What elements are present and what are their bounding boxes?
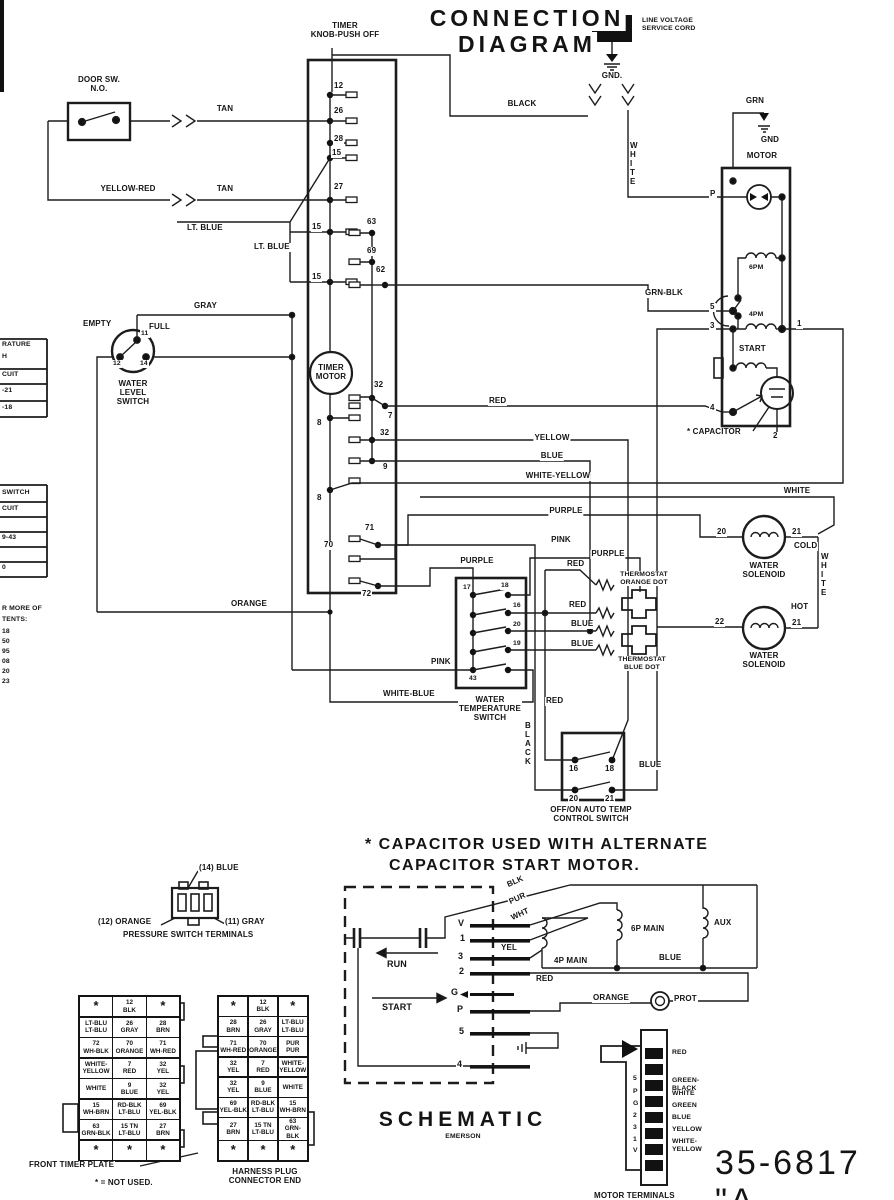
red-sch-label: RED	[535, 975, 554, 984]
timer-terminal-32: 32	[373, 381, 384, 390]
capacitor-note-2: CAPACITOR START MOTOR.	[388, 857, 641, 875]
timer-terminal-26: 26	[333, 107, 344, 116]
water-temp-switch-label: WATER TEMPERATURE SWITCH	[458, 696, 522, 723]
plate-cell: 27 BRN	[147, 1120, 179, 1139]
motor-terminal-1: 1	[796, 320, 803, 329]
plate-cell: 7 RED	[113, 1059, 145, 1078]
purple-label-3: PURPLE	[590, 550, 625, 559]
wire-chevron	[172, 194, 195, 206]
plate-cell: 26 GRAY	[113, 1018, 145, 1037]
start-label-2: START	[381, 1002, 413, 1012]
full-label: FULL	[148, 323, 171, 332]
hot-terminal-22: 22	[714, 618, 725, 627]
ground-symbol	[604, 64, 620, 70]
left-frag: 20	[1, 668, 11, 676]
wts-terminal-16: 16	[512, 602, 522, 610]
motor-wire-color: WHITE	[671, 1090, 696, 1098]
water-solenoid-label-2: WATER SOLENOID	[742, 652, 787, 670]
harness-plug-caption: HARNESS PLUG CONNECTOR END	[228, 1168, 302, 1186]
red-label-2: RED	[566, 560, 585, 569]
timer-terminal-69: 69	[366, 247, 377, 256]
empty-label: EMPTY	[82, 320, 112, 329]
motor-terminals-caption: MOTOR TERMINALS	[593, 1192, 676, 1200]
yellow-red-label: YELLOW-RED	[99, 185, 156, 194]
start-label: START	[738, 345, 767, 354]
timer-terminal-9: 9	[382, 463, 389, 472]
plate-cell: WHITE	[279, 1078, 307, 1097]
capacitor-note-1: * CAPACITOR USED WITH ALTERNATE	[364, 836, 709, 854]
left-frag: 50	[1, 638, 11, 646]
4p-main-coil	[542, 918, 547, 968]
blue-label-2: BLUE	[570, 620, 594, 629]
motor-pin-letter: 5	[632, 1075, 638, 1083]
pink-label-2: PINK	[430, 658, 452, 667]
scan-edge-artifact	[0, 0, 4, 92]
wts-terminal-18: 18	[500, 582, 510, 590]
plate-cell: 63 GRN-BLK	[80, 1120, 112, 1139]
yellow-label: YELLOW	[533, 434, 570, 443]
wts-terminal-43: 43	[468, 675, 478, 683]
plate-cell: *	[219, 1141, 247, 1160]
capacitor-circle	[761, 377, 793, 409]
plate-cell: PUR PUR	[279, 1037, 307, 1056]
plate-cell: *	[80, 997, 112, 1016]
motor-box	[722, 168, 790, 426]
left-frag: 95	[1, 648, 11, 656]
temp-control-switch-label: OFF/ON AUTO TEMP CONTROL SWITCH	[549, 806, 633, 824]
wts-terminal-17: 17	[462, 584, 472, 592]
plate-cell: 32 YEL	[219, 1058, 247, 1077]
6p-main-label: 6P MAIN	[630, 925, 665, 934]
thermostat-zigzag	[596, 645, 614, 655]
plate-cell: WHITE- YELLOW	[80, 1059, 112, 1078]
pressure-12-orange: (12) ORANGE	[97, 918, 152, 927]
white-label: WHITE	[783, 487, 812, 496]
motor-pin-letter: 2	[632, 1112, 638, 1120]
orange-sch-label: ORANGE	[592, 994, 630, 1003]
plate-cell: 70 ORANGE	[249, 1037, 277, 1056]
motor-wire-color: GREEN	[671, 1102, 698, 1110]
thermostat-zigzag	[596, 580, 614, 590]
sch-terminal-V: V	[457, 918, 465, 928]
6p-main-coil	[617, 910, 622, 968]
left-frag: 0	[1, 564, 7, 572]
pink-label: PINK	[550, 536, 572, 545]
timer-terminal-63: 63	[366, 218, 377, 227]
timer-terminal-72: 72	[361, 590, 372, 599]
sch-terminal-5: 5	[458, 1026, 465, 1036]
cold-label: COLD	[793, 542, 818, 551]
motor-terminal-4: 4	[709, 404, 716, 413]
sch-terminal-1: 1	[459, 933, 466, 943]
wire-chevron	[622, 84, 634, 105]
pressure-14-blue: (14) BLUE	[198, 864, 240, 873]
plate-cell: 63 GRN-BLK	[279, 1118, 307, 1140]
run-arrow	[377, 949, 438, 958]
pink-wire	[360, 545, 575, 790]
plate-cell: *	[219, 997, 247, 1016]
motor-pin-letter: P	[632, 1088, 639, 1096]
grn-blk-label: GRN-BLK	[644, 289, 684, 298]
motor-wire-color: BLUE	[671, 1114, 692, 1122]
plate-cell: *	[113, 1141, 145, 1160]
timer-terminal-15b: 15	[311, 223, 322, 232]
door-switch-box	[68, 103, 130, 140]
blue-label-4: BLUE	[638, 761, 662, 770]
plate-cell: WHITE- YELLOW	[279, 1058, 307, 1077]
pressure-switch-caption: PRESSURE SWITCH TERMINALS	[122, 931, 254, 940]
yel-label: YEL	[500, 944, 518, 953]
blue-label-3: BLUE	[570, 640, 594, 649]
sch-terminal-G: G	[450, 987, 459, 997]
plate-cell: 27 BRN	[219, 1118, 247, 1140]
left-frag: H	[1, 353, 8, 361]
timer-terminal-15: 15	[331, 149, 342, 158]
purple-wire2	[378, 568, 473, 595]
gray-label: GRAY	[193, 302, 218, 311]
left-frag: RATURE	[1, 341, 32, 349]
plate-cell: 32 YEL	[147, 1059, 179, 1078]
plate-cell: 12 BLK	[249, 997, 277, 1016]
wts-terminal-19: 19	[512, 640, 522, 648]
left-frag: SWITCH	[1, 489, 31, 497]
black-wire	[332, 55, 588, 116]
emerson-label: EMERSON	[444, 1133, 481, 1141]
motor-pin-letter: 1	[632, 1136, 638, 1144]
schematic-dashed-box	[345, 887, 493, 1083]
left-frag: CUIT	[1, 371, 19, 379]
motor-pin-letter: V	[632, 1147, 639, 1155]
motor-terminal-pins	[622, 1040, 663, 1171]
sch-terminal-P: P	[456, 1004, 464, 1014]
left-frag: 18	[1, 628, 11, 636]
plate-cell: 72 WH-BLK	[80, 1038, 112, 1057]
motor-terminal-P: P	[709, 190, 717, 199]
white-blue-label: WHITE-BLUE	[382, 690, 436, 699]
pressure-switch-body	[172, 888, 218, 918]
start-coil	[736, 363, 766, 368]
timer-terminal-12: 12	[333, 82, 344, 91]
timer-terminal-15c: 15	[311, 273, 322, 282]
white-yellow-label: WHITE-YELLOW	[525, 472, 591, 481]
red-label-4: RED	[545, 697, 564, 706]
4pm-label: 4PM	[748, 311, 764, 319]
plate-cell: LT-BLU LT-BLU	[279, 1017, 307, 1036]
plate-cell: *	[147, 997, 179, 1016]
plate-cell: 26 GRAY	[249, 1017, 277, 1036]
timer-terminal-8b: 8	[316, 494, 323, 503]
plate-cell: 15 TN LT-BLU	[249, 1118, 277, 1140]
white-vertical-label: W H I T E	[820, 553, 830, 598]
run-label: RUN	[386, 959, 408, 969]
cold-terminal-21: 21	[791, 528, 802, 537]
plate-cell: *	[80, 1141, 112, 1160]
motor-terminal-3: 3	[709, 322, 716, 331]
part-number: 35-6817 "A	[714, 1144, 894, 1200]
white-wire-label: W H I T E	[629, 142, 639, 187]
motor-pin-letter: 3	[632, 1124, 638, 1132]
thermostat-orange-label: THERMOSTAT ORANGE DOT	[619, 571, 669, 586]
grn-label: GRN	[745, 97, 765, 106]
red-control-wire	[545, 613, 575, 760]
schematic-ground	[518, 1042, 526, 1054]
timer-knob-label: TIMER KNOB-PUSH OFF	[310, 22, 381, 40]
ctl-terminal-21: 21	[604, 795, 615, 804]
plate-cell: *	[249, 1141, 277, 1160]
timer-terminal-28: 28	[333, 135, 344, 144]
motor-gnd-label: GND	[760, 136, 780, 145]
motor-label: MOTOR	[746, 152, 778, 161]
left-frag: TENTS:	[1, 616, 28, 624]
plate-cell: RD-BLK LT-BLU	[249, 1098, 277, 1117]
plate-cell: 7 RED	[249, 1058, 277, 1077]
motor-wire-color: YELLOW	[671, 1126, 703, 1134]
motor-terminal-5: 5	[709, 303, 716, 312]
door-switch-label: DOOR SW. N.O.	[77, 76, 121, 94]
aux-coil	[703, 885, 708, 968]
line-voltage-label: LINE VOLTAGE SERVICE CORD	[641, 17, 696, 32]
plate-cell: 15 TN LT-BLU	[113, 1120, 145, 1139]
tan-label-2: TAN	[216, 185, 234, 194]
thermostat-blue-label: THERMOSTAT BLUE DOT	[617, 656, 667, 671]
wls-terminal-11: 11	[140, 330, 150, 338]
purple-label: PURPLE	[548, 507, 583, 516]
harness-plug-table: *12 BLK*28 BRN26 GRAYLT-BLU LT-BLU71 WH-…	[217, 995, 309, 1162]
6pm-label: 6PM	[748, 264, 764, 272]
red-label: RED	[488, 397, 507, 406]
orange-label: ORANGE	[230, 600, 268, 609]
timer-terminal-70: 70	[323, 541, 334, 550]
purple-label-2: PURPLE	[459, 557, 494, 566]
plate-cell: *	[147, 1141, 179, 1160]
hot-label: HOT	[790, 603, 809, 612]
schematic-terminal-bars	[460, 924, 530, 1069]
6pm-coil	[746, 253, 776, 258]
water-solenoid-label: WATER SOLENOID	[742, 562, 787, 580]
pressure-11-gray: (11) GRAY	[224, 918, 266, 927]
front-timer-plate-caption: FRONT TIMER PLATE	[28, 1161, 115, 1170]
left-frag: -18	[1, 404, 13, 412]
plate-cell: 28 BRN	[147, 1018, 179, 1037]
left-frag: 9-43	[1, 534, 17, 542]
thermostat-zigzag	[596, 626, 614, 636]
tan-label: TAN	[216, 105, 234, 114]
wire-chevron	[172, 115, 195, 127]
left-frag: -21	[1, 387, 13, 395]
ctl-terminal-16: 16	[568, 765, 579, 774]
ctl-terminal-20: 20	[568, 795, 579, 804]
black-vertical-label: B L A C K	[524, 722, 532, 767]
timer-terminal-32b: 32	[379, 429, 390, 438]
plate-cell: 70 ORANGE	[113, 1038, 145, 1057]
plate-cell: 32 YEL	[219, 1078, 247, 1097]
sch-terminal-2: 2	[458, 966, 465, 976]
sch-terminal-4: 4	[456, 1059, 463, 1069]
plate-cell: RD-BLK LT-BLU	[113, 1100, 145, 1119]
water-level-switch-label: WATER LEVEL SWITCH	[116, 380, 150, 407]
hot-terminal-21: 21	[791, 619, 802, 628]
ctl-terminal-18: 18	[604, 765, 615, 774]
black-wire-label: BLACK	[507, 100, 538, 109]
plate-cell: 12 BLK	[113, 997, 145, 1016]
left-frag: R MORE OF	[1, 605, 43, 613]
timer-terminal-8: 8	[316, 419, 323, 428]
red-sch-wire	[530, 973, 748, 1001]
motor-terminal-2: 2	[772, 432, 779, 441]
left-frag: CUIT	[1, 505, 19, 513]
aux-label: AUX	[713, 919, 732, 928]
wire-chevron	[589, 84, 601, 105]
blue-label: BLUE	[540, 452, 564, 461]
thermostat-orange-body	[622, 590, 656, 618]
red-wire	[385, 406, 722, 412]
not-used-note: * = NOT USED.	[94, 1179, 154, 1188]
lt-blue-label-2: LT. BLUE	[253, 243, 291, 252]
prot-circle	[651, 992, 669, 1010]
plate-cell: *	[279, 997, 307, 1016]
plate-cell: 71 WH-RED	[147, 1038, 179, 1057]
lt-blue-label: LT. BLUE	[186, 224, 224, 233]
plate-cell: 71 WH-RED	[219, 1037, 247, 1056]
motor-wire-color: WHITE-YELLOW	[671, 1138, 703, 1153]
page-title: CONNECTION	[429, 6, 626, 31]
white-wire	[628, 110, 722, 197]
wiring-diagram-page: TIMER KNOB-PUSH OFF CONNECTION DIAGRAM L…	[0, 0, 894, 1200]
plate-cell: 15 WH-BRN	[80, 1100, 112, 1119]
thermostat-blue-body	[622, 626, 656, 654]
4p-main-label: 4P MAIN	[553, 957, 588, 966]
left-frag: 08	[1, 658, 11, 666]
wls-terminal-14: 14	[139, 360, 149, 368]
plate-cell: 9 BLUE	[249, 1078, 277, 1097]
blue-sch-label: BLUE	[658, 954, 682, 963]
timer-spade-terminals	[346, 92, 360, 584]
blue-wire	[372, 461, 590, 631]
page-title-2: DIAGRAM	[457, 32, 597, 57]
cold-terminal-20: 20	[716, 528, 727, 537]
plate-cell: 32 YEL	[147, 1079, 179, 1098]
plate-cell: 28 BRN	[219, 1017, 247, 1036]
motor-wire-color: RED	[671, 1049, 688, 1057]
prot-label: PROT	[673, 995, 698, 1004]
plate-cell: *	[279, 1141, 307, 1160]
timer-terminal-27: 27	[333, 183, 344, 192]
orange-sch-wire	[530, 1003, 651, 1011]
red-label-3: RED	[568, 601, 587, 610]
sch-terminal-3: 3	[457, 951, 464, 961]
plate-cell: LT-BLU LT-BLU	[80, 1018, 112, 1037]
wts-terminal-20: 20	[512, 621, 522, 629]
schematic-title: SCHEMATIC	[378, 1108, 548, 1132]
plate-cell: 69 YEL-BLK	[219, 1098, 247, 1117]
thermostat-zigzag	[596, 608, 614, 618]
gnd-label: GND.	[601, 72, 624, 81]
left-table-b	[0, 485, 47, 577]
plate-cell: 15 WH-BRN	[279, 1098, 307, 1117]
front-timer-plate-table: *12 BLK*LT-BLU LT-BLU26 GRAY28 BRN72 WH-…	[78, 995, 181, 1162]
motor-pin-letter: G	[632, 1100, 639, 1108]
4pm-coil	[746, 324, 776, 329]
timer-terminal-71: 71	[364, 524, 375, 533]
plate-cell: 9 BLUE	[113, 1079, 145, 1098]
timer-motor-label: TIMER MOTOR	[315, 364, 347, 382]
plate-cell: 69 YEL-BLK	[147, 1100, 179, 1119]
timer-terminal-62: 62	[375, 266, 386, 275]
plate-cell: WHITE	[80, 1079, 112, 1098]
wls-terminal-12: 12	[112, 360, 122, 368]
timer-terminal-7: 7	[387, 412, 394, 421]
left-frag: 23	[1, 678, 11, 686]
capacitor-label: * CAPACITOR	[686, 428, 742, 437]
